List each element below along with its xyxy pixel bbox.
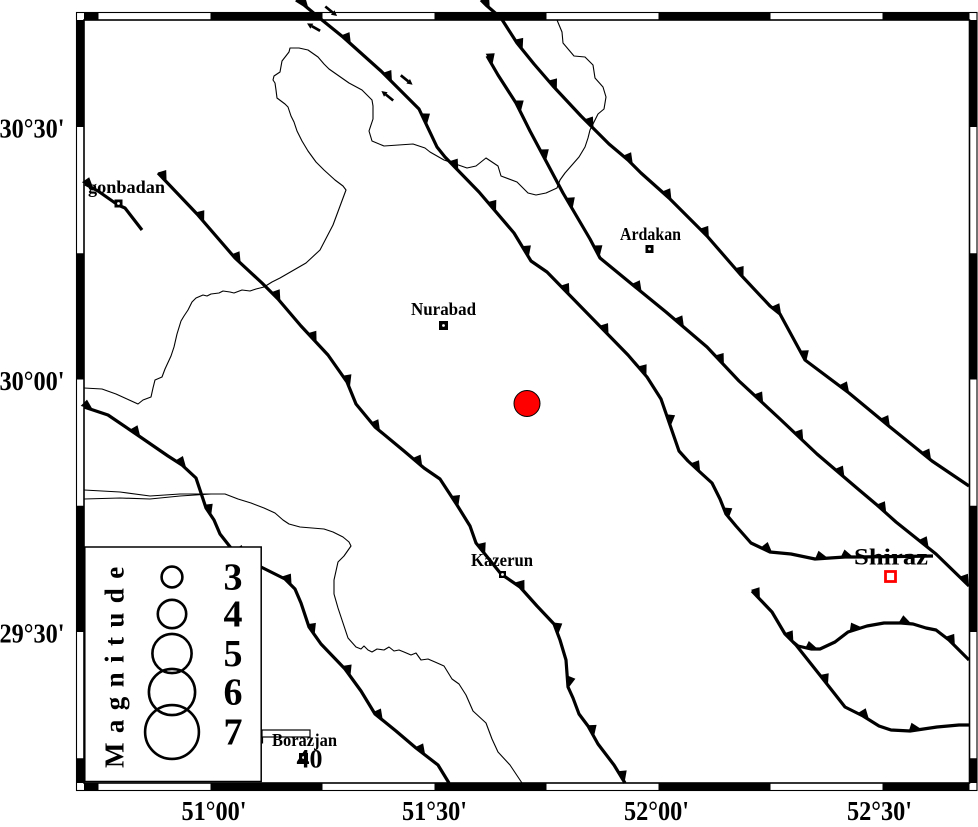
svg-text:51°30': 51°30' [402,795,467,822]
svg-text:52°00': 52°00' [624,795,689,822]
svg-text:7: 7 [224,712,243,754]
svg-text:Ardakan: Ardakan [620,224,681,244]
svg-text:5: 5 [224,633,243,675]
svg-text:3: 3 [224,557,243,599]
svg-text:52°30': 52°30' [847,795,912,822]
svg-text:Kazerun: Kazerun [471,550,533,570]
svg-text:6: 6 [224,672,243,714]
svg-text:Nurabad: Nurabad [411,299,476,319]
svg-text:30°00': 30°00' [0,365,65,396]
svg-text:30°30': 30°30' [0,113,65,144]
svg-text:4: 4 [224,594,243,636]
svg-text:29°30': 29°30' [0,618,65,649]
svg-text:40: 40 [297,745,323,774]
svg-text:51°00': 51°00' [182,795,247,822]
svg-text:Shiraz: Shiraz [854,545,928,571]
svg-text:gonbadan: gonbadan [88,177,165,197]
svg-text:Magnitude: Magnitude [100,557,130,768]
